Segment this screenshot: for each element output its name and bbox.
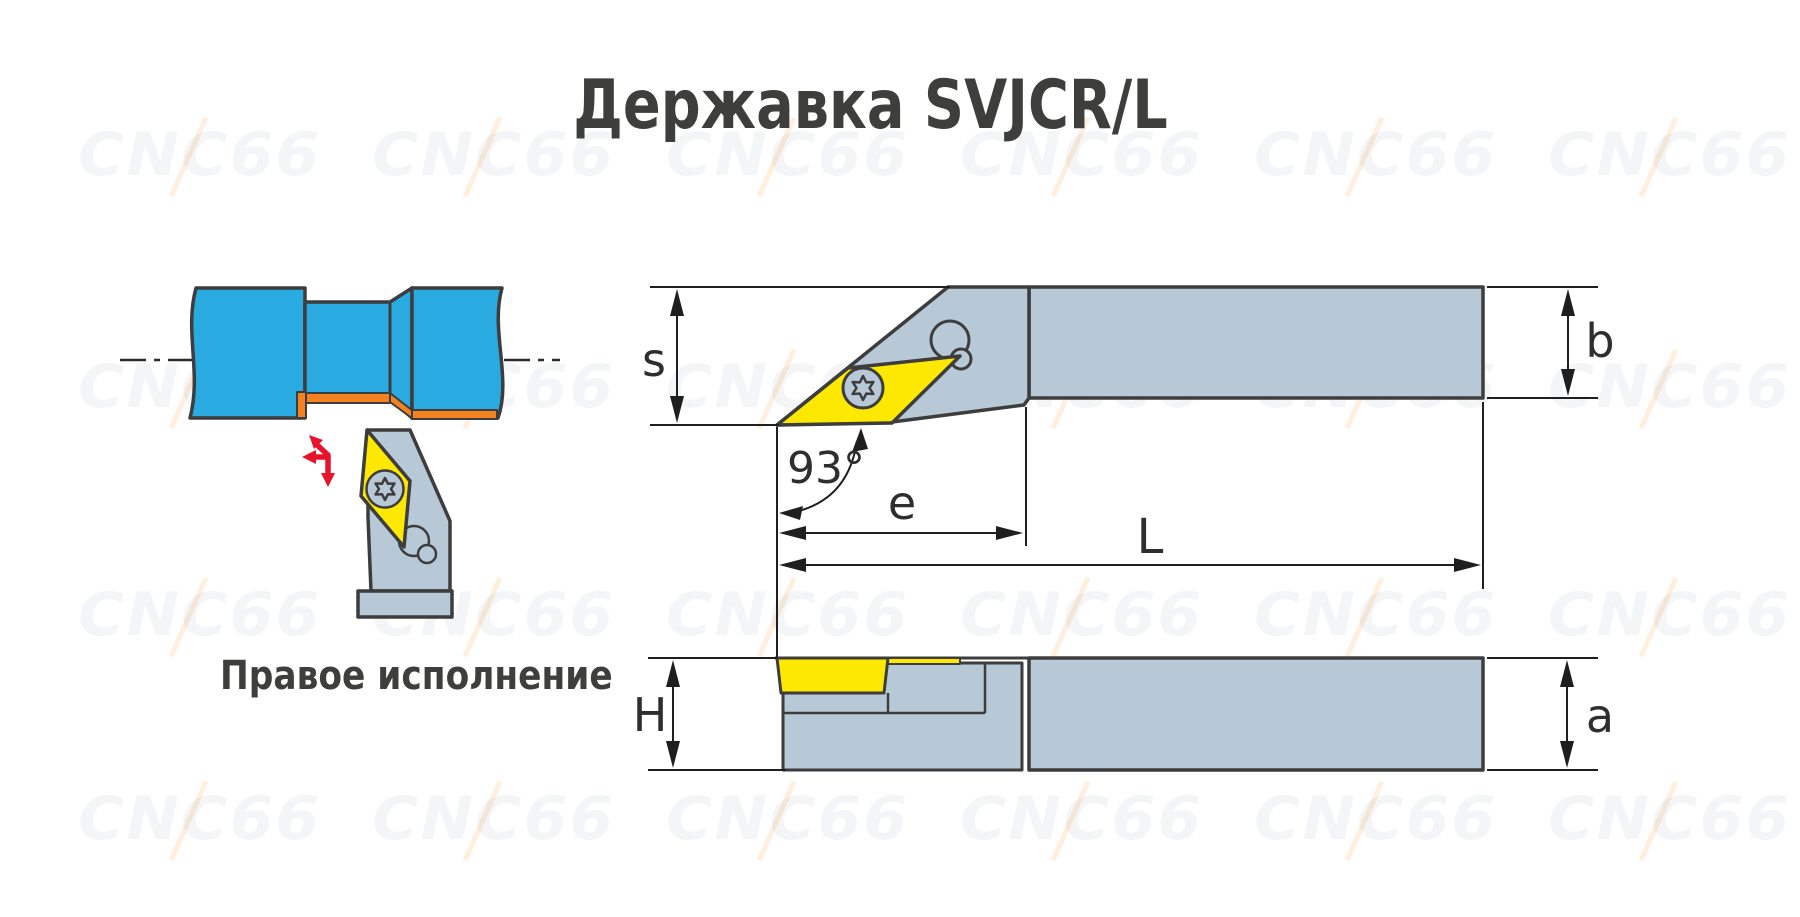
torx-screw <box>367 471 404 508</box>
dim-label-s: s <box>642 333 666 387</box>
s-arrow-down <box>670 396 684 423</box>
holder-shank-step <box>358 591 452 617</box>
e-arrow-right <box>996 526 1023 540</box>
torx-screw-top-view <box>843 368 883 408</box>
dim-label-e: e <box>888 476 916 530</box>
dim-label-L: L <box>1137 509 1164 565</box>
left-illustration-caption: Правое исполнение <box>188 653 580 699</box>
workpiece-left-section <box>190 288 305 418</box>
machined-surface-right <box>412 410 497 419</box>
a-arrow-up <box>1560 660 1574 687</box>
arrow-down-head <box>321 473 335 487</box>
machined-surface-shoulder <box>297 392 306 418</box>
workpiece-illustration <box>120 288 560 419</box>
shank-front-view <box>1029 658 1483 770</box>
workpiece-right-section <box>412 288 503 418</box>
dim-label-angle: 93° <box>787 443 865 494</box>
toolholder-illustration <box>358 430 452 617</box>
b-arrow-down <box>1561 369 1575 396</box>
shank-top-view <box>1029 287 1483 398</box>
page-title-text: Державка SVJCR/L <box>573 66 1168 145</box>
a-arrow-down <box>1560 741 1574 768</box>
L-arrow-left <box>779 558 806 572</box>
H-arrow-down <box>666 741 680 768</box>
machined-surface-neck <box>306 393 390 403</box>
insert-edge-strip <box>888 658 960 664</box>
feed-direction-arrows <box>302 435 335 487</box>
dim-label-a: a <box>1586 689 1614 743</box>
caption-text: Правое исполнение <box>220 653 613 699</box>
L-arrow-right <box>1454 558 1481 572</box>
H-arrow-up <box>666 660 680 687</box>
dim-label-b: b <box>1585 314 1614 368</box>
page-title: Державка SVJCR/L <box>0 66 1740 145</box>
insert-front-view <box>777 658 888 693</box>
e-arrow-left <box>779 526 806 540</box>
b-arrow-up <box>1561 289 1575 316</box>
s-arrow-up <box>670 289 684 316</box>
clamp-screw-blob-small <box>418 545 436 563</box>
page: CNC66CNC66CNC66CNC66CNC66CNC66CNC66CNC66… <box>0 0 1800 917</box>
top-view <box>777 287 1483 425</box>
angle-arrow-left <box>779 506 803 520</box>
front-view <box>775 658 1483 770</box>
dim-label-H: H <box>633 688 668 742</box>
arrow-left-head <box>302 450 316 464</box>
